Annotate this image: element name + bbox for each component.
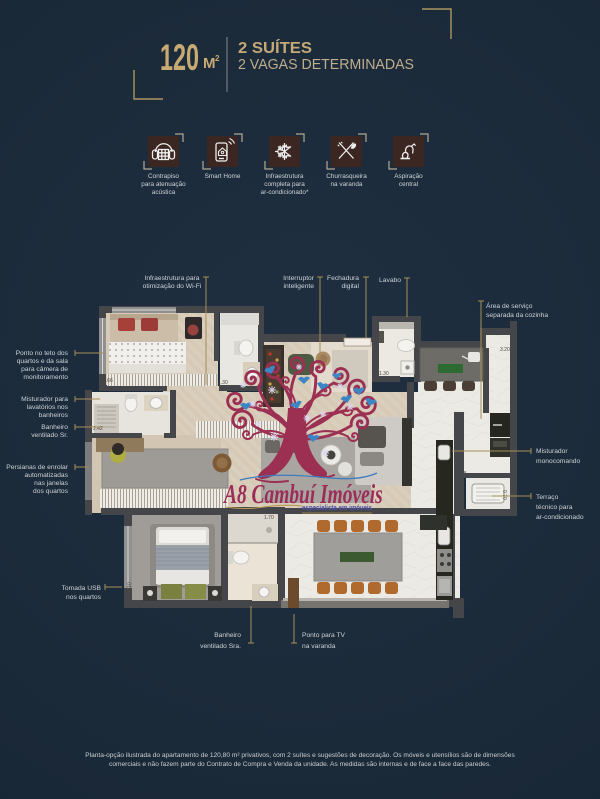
svg-text:monocomando: monocomando <box>536 458 581 465</box>
svg-text:ar-condicionado: ar-condicionado <box>536 514 584 521</box>
svg-text:comerciais e não fazem parte d: comerciais e não fazem parte do Contrato… <box>109 761 491 768</box>
svg-text:digital: digital <box>342 283 360 290</box>
svg-text:otimização do Wi-Fi: otimização do Wi-Fi <box>143 283 202 290</box>
svg-text:para atenuação: para atenuação <box>141 181 186 188</box>
svg-text:ventilado Sra.: ventilado Sra. <box>200 643 241 650</box>
svg-text:Aspiração: Aspiração <box>394 173 423 180</box>
svg-text:120: 120 <box>160 37 199 78</box>
svg-text:nos quartos: nos quartos <box>66 594 102 601</box>
svg-text:lavatórios nos: lavatórios nos <box>27 404 69 411</box>
svg-text:Misturador: Misturador <box>536 448 568 455</box>
svg-text:Ponto para TV: Ponto para TV <box>302 632 346 639</box>
svg-text:Terraço: Terraço <box>536 494 559 501</box>
svg-text:Área de serviço: Área de serviço <box>486 301 533 310</box>
svg-text:2 SUÍTES: 2 SUÍTES <box>238 38 312 57</box>
svg-text:ventilado Sr.: ventilado Sr. <box>31 432 68 439</box>
svg-text:Interruptor: Interruptor <box>283 275 315 282</box>
svg-text:inteligente: inteligente <box>284 283 315 290</box>
svg-text:0.70: 0.70 <box>501 490 507 500</box>
svg-text:Infraestrutura para: Infraestrutura para <box>144 275 199 282</box>
svg-text:monitoramento: monitoramento <box>23 374 68 381</box>
svg-text:Smart Home: Smart Home <box>205 173 241 180</box>
svg-text:técnico para: técnico para <box>536 504 573 511</box>
svg-text:na varanda: na varanda <box>331 181 363 188</box>
svg-text:Banheiro: Banheiro <box>41 424 68 431</box>
svg-text:especialista em imóveis: especialista em imóveis <box>302 505 372 512</box>
svg-text:dos quartos: dos quartos <box>33 488 69 495</box>
svg-text:1.70: 1.70 <box>264 515 274 521</box>
svg-text:Ponto no teto dos: Ponto no teto dos <box>16 350 69 357</box>
svg-text:2: 2 <box>215 54 220 63</box>
svg-text:automatizadas: automatizadas <box>25 472 69 479</box>
svg-text:Contrapiso: Contrapiso <box>148 173 179 180</box>
svg-text:5.10: 5.10 <box>127 582 133 592</box>
svg-text:nas janelas: nas janelas <box>34 480 68 487</box>
svg-text:3.20: 3.20 <box>500 347 510 353</box>
svg-text:2 VAGAS DETERMINADAS: 2 VAGAS DETERMINADAS <box>238 56 414 73</box>
svg-text:separada da cozinha: separada da cozinha <box>486 312 548 319</box>
svg-text:central: central <box>399 181 418 188</box>
svg-text:para câmera de: para câmera de <box>21 366 68 373</box>
svg-text:1.75: 1.75 <box>457 471 467 477</box>
svg-text:Tomada USB: Tomada USB <box>62 585 102 592</box>
svg-text:3.66: 3.66 <box>103 378 113 384</box>
svg-text:1.30: 1.30 <box>218 380 228 386</box>
svg-text:M: M <box>203 55 216 72</box>
svg-text:banheiros: banheiros <box>39 412 69 419</box>
svg-text:Misturador para: Misturador para <box>21 396 68 403</box>
svg-text:na varanda: na varanda <box>302 643 336 650</box>
svg-text:Banheiro: Banheiro <box>214 632 241 639</box>
svg-text:quartos e da sala: quartos e da sala <box>17 358 69 365</box>
svg-text:1.30: 1.30 <box>379 371 389 377</box>
svg-text:Persianas de enrolar: Persianas de enrolar <box>6 464 68 471</box>
svg-text:completa para: completa para <box>264 181 305 188</box>
svg-text:acústica: acústica <box>152 189 176 196</box>
svg-text:Fechadura: Fechadura <box>327 275 359 282</box>
svg-text:ar-condicionado*: ar-condicionado* <box>261 189 309 196</box>
svg-text:Infraestrutura: Infraestrutura <box>265 173 303 180</box>
svg-text:Lavabo: Lavabo <box>379 277 401 284</box>
svg-text:Churrasqueira: Churrasqueira <box>326 173 367 180</box>
svg-text:Planta-opção ilustrada do apar: Planta-opção ilustrada do apartamento de… <box>85 752 515 759</box>
